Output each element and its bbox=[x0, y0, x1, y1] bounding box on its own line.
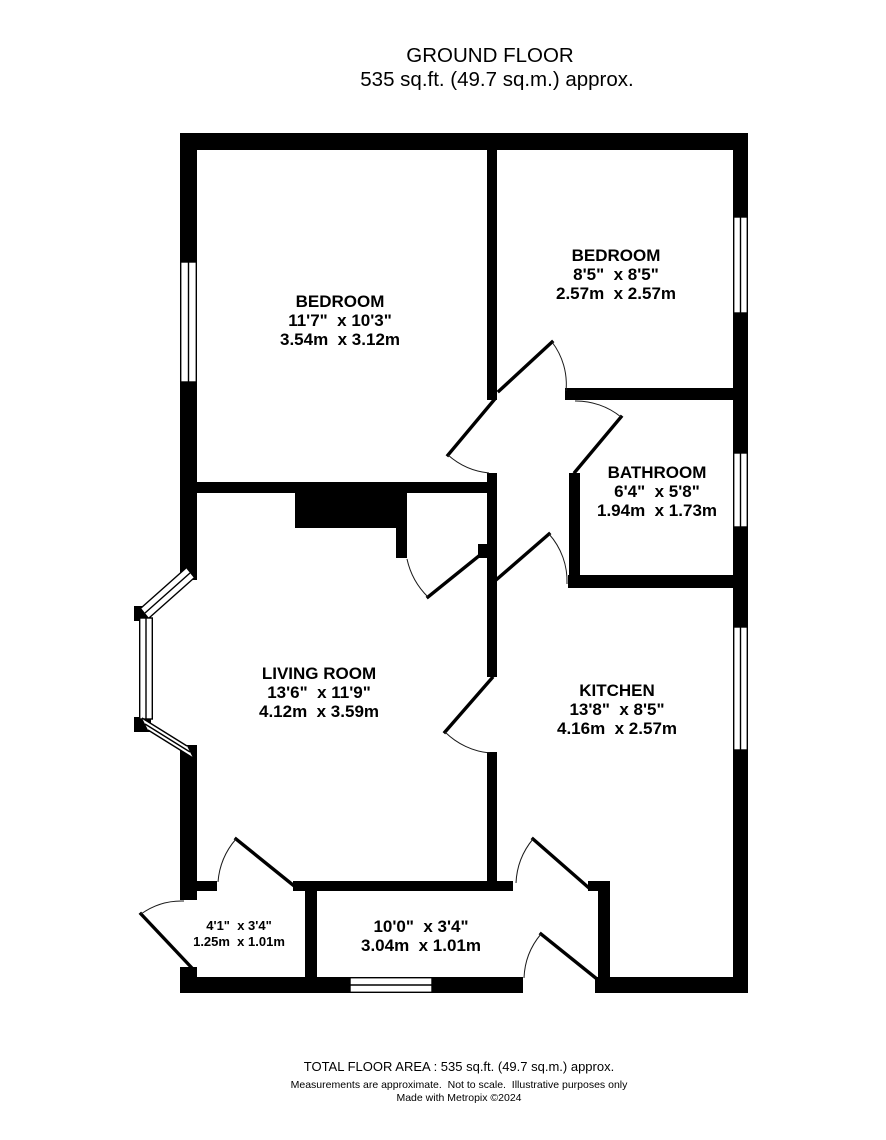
wall-living-south-c bbox=[588, 881, 610, 891]
kitchen-imperial: 13'8" x 8'5" bbox=[569, 700, 664, 719]
label-living-room: LIVING ROOM 13'6" x 11'9" 4.12m x 3.59m bbox=[259, 664, 379, 721]
door-living-room-north-swing-arc bbox=[407, 559, 428, 597]
wall-living-north bbox=[197, 482, 497, 493]
bathroom-name: BATHROOM bbox=[608, 463, 707, 482]
door-bedroom-front-leaf bbox=[448, 400, 494, 455]
door-living-to-porch-swing-arc bbox=[218, 839, 236, 882]
door-hallway-to-kitchen-leaf bbox=[533, 839, 589, 888]
bedroom-front-name: BEDROOM bbox=[296, 292, 385, 311]
door-bedroom-front-swing-arc bbox=[448, 455, 489, 473]
wall-west-mid bbox=[180, 747, 197, 900]
window-bedroom-rear bbox=[734, 217, 748, 313]
door-bathroom-swing-arc bbox=[575, 401, 621, 417]
chimney-stub bbox=[396, 493, 407, 558]
label-bathroom: BATHROOM 6'4" x 5'8" 1.94m x 1.73m bbox=[597, 463, 717, 520]
door-bedroom-rear-swing-arc bbox=[552, 342, 566, 391]
bedroom-front-metric: 3.54m x 3.12m bbox=[280, 330, 400, 349]
back-door-swing-arc bbox=[524, 934, 541, 978]
door-hall-to-kitchen-leaf bbox=[496, 534, 549, 580]
wall-living-hall-upper bbox=[487, 473, 497, 677]
hallway-imperial: 10'0" x 3'4" bbox=[373, 917, 468, 936]
bedroom-rear-metric: 2.57m x 2.57m bbox=[556, 284, 676, 303]
wall-bathroom-west bbox=[569, 473, 580, 578]
windows bbox=[140, 217, 748, 992]
door-hall-to-kitchen-swing-arc bbox=[549, 534, 567, 584]
door-bedroom-rear-leaf bbox=[499, 342, 552, 391]
back-door-opening bbox=[523, 977, 595, 993]
door-living-to-kitchen-leaf bbox=[445, 678, 492, 732]
chimney-breast bbox=[295, 493, 398, 528]
wall-porch-divider bbox=[305, 891, 317, 977]
wall-kitchen-north bbox=[568, 575, 733, 588]
floor-area-subtitle: 535 sq.ft. (49.7 sq.m.) approx. bbox=[360, 68, 633, 91]
bay-window bbox=[140, 568, 194, 758]
window-bathroom bbox=[734, 453, 748, 527]
living-room-imperial: 13'6" x 11'9" bbox=[267, 683, 371, 702]
door-living-to-porch-leaf bbox=[236, 839, 293, 885]
window-kitchen bbox=[734, 627, 748, 750]
window-bedroom-front bbox=[181, 262, 197, 382]
wall-living-south-a bbox=[197, 881, 217, 891]
window-hallway-south bbox=[350, 978, 432, 993]
door-hallway-to-kitchen-swing-arc bbox=[516, 839, 533, 883]
bathroom-metric: 1.94m x 1.73m bbox=[597, 501, 717, 520]
bedroom-rear-name: BEDROOM bbox=[572, 246, 661, 265]
hallway-metric: 3.04m x 1.01m bbox=[361, 936, 481, 955]
total-floor-area: TOTAL FLOOR AREA : 535 sq.ft. (49.7 sq.m… bbox=[304, 1059, 614, 1074]
kitchen-name: KITCHEN bbox=[579, 681, 655, 700]
label-bedroom-front: BEDROOM 11'7" x 10'3" 3.54m x 3.12m bbox=[280, 292, 400, 349]
bedroom-front-imperial: 11'7" x 10'3" bbox=[288, 311, 392, 330]
wall-south bbox=[180, 977, 748, 993]
label-porch: 4'1" x 3'4" 1.25m x 1.01m bbox=[193, 918, 285, 949]
label-kitchen: KITCHEN 13'8" x 8'5" 4.16m x 2.57m bbox=[557, 681, 677, 738]
floorplan-page: GROUND FLOOR 535 sq.ft. (49.7 sq.m.) app… bbox=[0, 0, 886, 1140]
footer: TOTAL FLOOR AREA : 535 sq.ft. (49.7 sq.m… bbox=[291, 1059, 628, 1104]
door-living-to-kitchen-swing-arc bbox=[445, 732, 490, 753]
room-labels: BEDROOM 11'7" x 10'3" 3.54m x 3.12m BEDR… bbox=[193, 246, 717, 955]
floorplan-svg: GROUND FLOOR 535 sq.ft. (49.7 sq.m.) app… bbox=[0, 0, 886, 1140]
kitchen-metric: 4.16m x 2.57m bbox=[557, 719, 677, 738]
wall-north bbox=[180, 133, 748, 150]
door-living-room-north-leaf bbox=[428, 551, 485, 597]
porch-metric: 1.25m x 1.01m bbox=[193, 934, 285, 949]
label-hallway: 10'0" x 3'4" 3.04m x 1.01m bbox=[361, 917, 481, 955]
label-bedroom-rear: BEDROOM 8'5" x 8'5" 2.57m x 2.57m bbox=[556, 246, 676, 303]
wall-hallway-east bbox=[598, 891, 610, 977]
wall-living-kitchen-lower bbox=[487, 752, 497, 881]
wall-bedroom-rear-south bbox=[565, 388, 733, 400]
back-door-leaf bbox=[541, 934, 597, 979]
wall-living-south-b bbox=[293, 881, 513, 891]
living-room-name: LIVING ROOM bbox=[262, 664, 376, 683]
living-room-metric: 4.12m x 3.59m bbox=[259, 702, 379, 721]
wall-bedroom-divider bbox=[487, 150, 497, 400]
disclaimer: Measurements are approximate. Not to sca… bbox=[291, 1079, 628, 1091]
porch-imperial: 4'1" x 3'4" bbox=[206, 918, 272, 933]
bedroom-rear-imperial: 8'5" x 8'5" bbox=[573, 265, 659, 284]
front-door-leaf bbox=[141, 914, 191, 967]
front-door-swing-arc bbox=[141, 901, 184, 914]
metropix-credit: Made with Metropix ©2024 bbox=[396, 1092, 521, 1104]
bathroom-imperial: 6'4" x 5'8" bbox=[614, 482, 700, 501]
floor-title: GROUND FLOOR bbox=[406, 44, 573, 67]
